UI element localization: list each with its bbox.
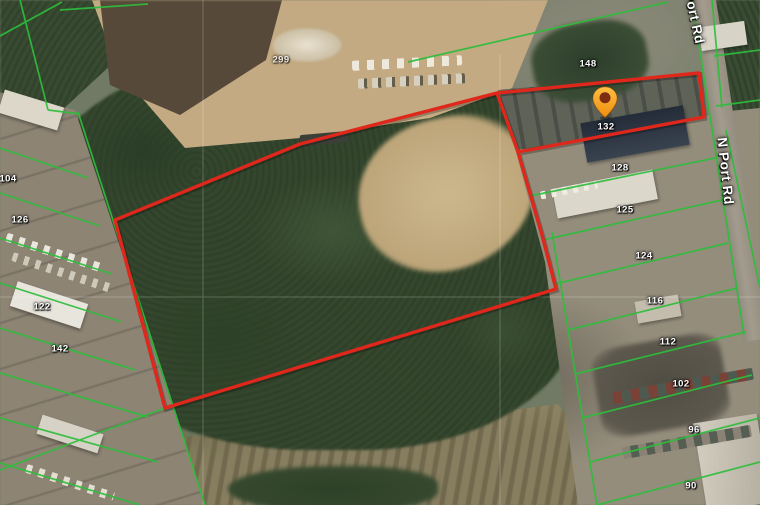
parcel-number-label: 112 xyxy=(660,337,677,348)
map-labels-layer: 1041261221422991481281251241161121029690… xyxy=(0,0,760,505)
location-pin[interactable] xyxy=(592,86,618,120)
parcel-number-label: 96 xyxy=(688,425,699,436)
pin-core-dot xyxy=(599,92,610,103)
parcel-number-label: 102 xyxy=(672,379,689,390)
parcel-number-label: 90 xyxy=(685,481,696,492)
pin-address-label: 132 xyxy=(597,122,614,133)
parcel-number-label: 299 xyxy=(272,55,289,66)
parcel-number-label: 104 xyxy=(0,174,17,185)
satellite-map[interactable]: 1041261221422991481281251241161121029690… xyxy=(0,0,760,505)
parcel-number-label: 125 xyxy=(616,205,633,216)
parcel-number-label: 128 xyxy=(611,163,628,174)
road-name-label: N Port Rd xyxy=(679,0,708,45)
road-name-label: N Port Rd xyxy=(715,137,737,206)
parcel-number-label: 122 xyxy=(33,302,50,313)
parcel-number-label: 148 xyxy=(579,59,596,70)
parcel-number-label: 116 xyxy=(647,296,664,307)
parcel-number-label: 124 xyxy=(635,251,652,262)
parcel-number-label: 126 xyxy=(11,215,28,226)
parcel-number-label: 142 xyxy=(51,344,68,355)
